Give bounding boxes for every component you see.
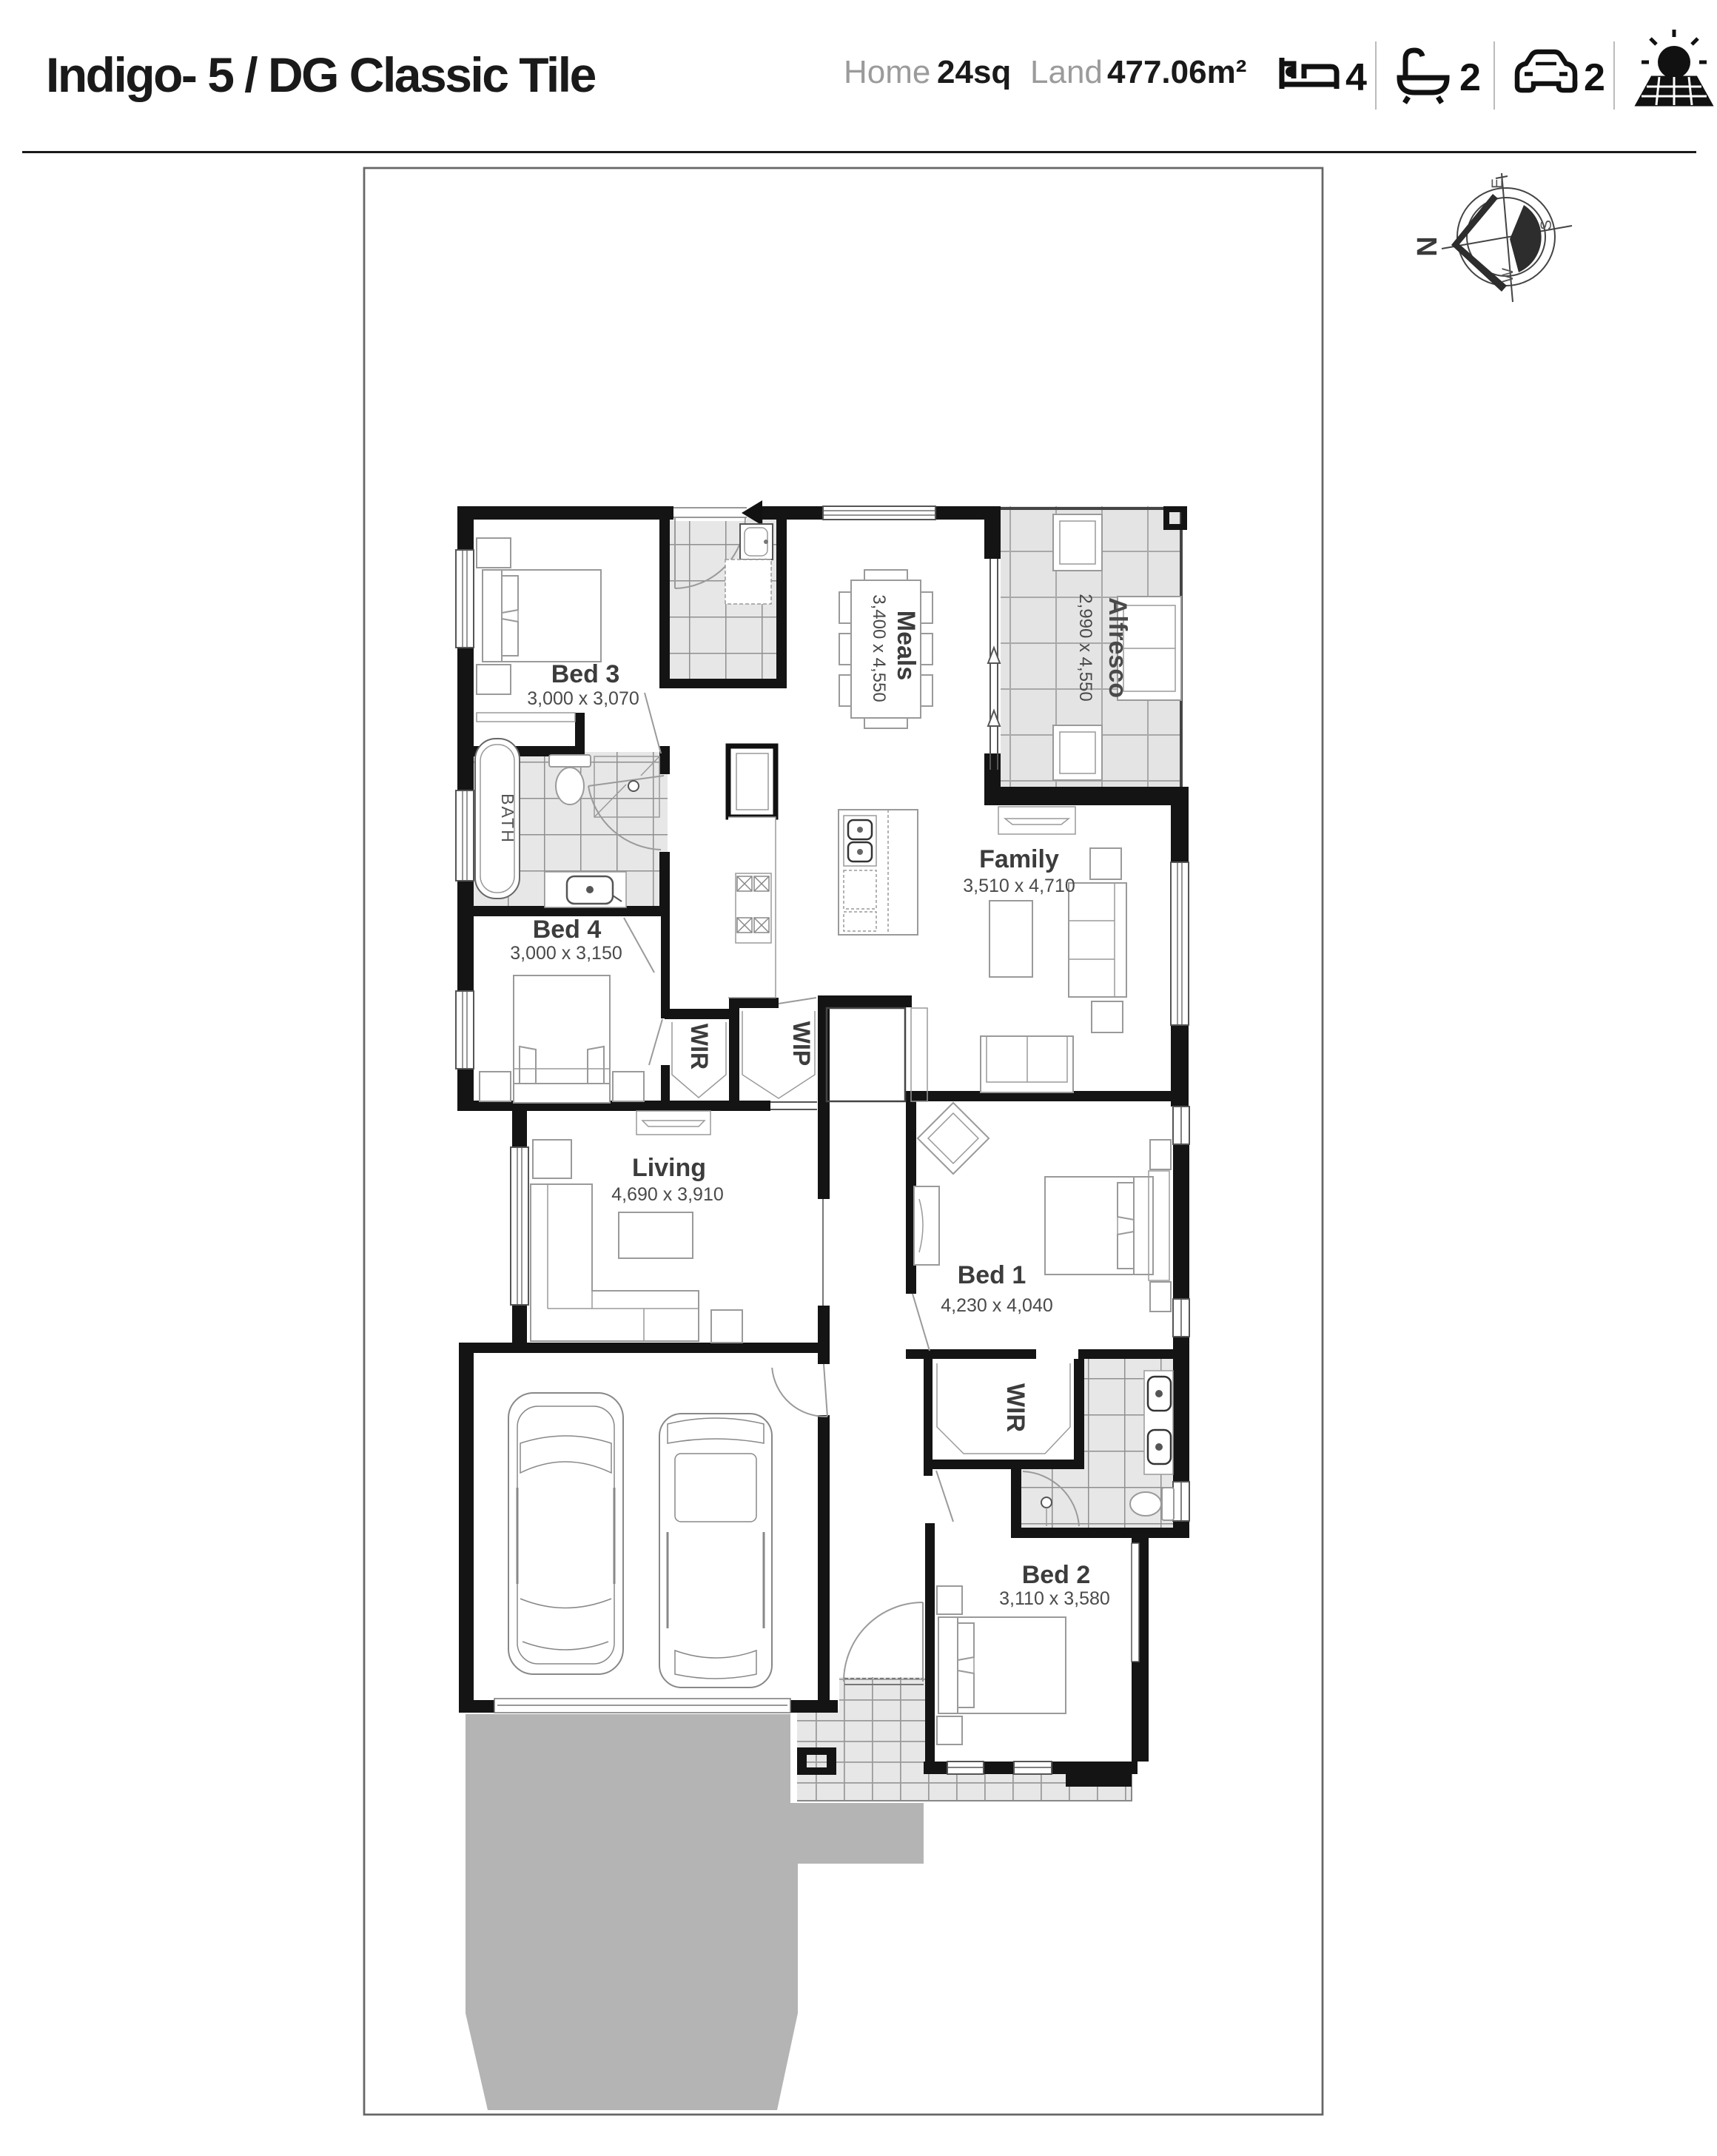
svg-text:4: 4 [1345, 56, 1367, 99]
svg-text:W: W [1499, 268, 1516, 283]
svg-text:Bed 3: Bed 3 [551, 660, 620, 688]
svg-text:WIR: WIR [686, 1024, 713, 1069]
svg-text:2,990 x 4,550: 2,990 x 4,550 [1075, 594, 1095, 701]
svg-text:3,400 x 4,550: 3,400 x 4,550 [869, 594, 889, 702]
svg-text:2: 2 [1459, 56, 1481, 99]
svg-text:BATH: BATH [498, 793, 517, 844]
svg-text:477.06m²: 477.06m² [1107, 54, 1246, 90]
svg-text:Bed 1: Bed 1 [958, 1261, 1026, 1289]
svg-text:Home: Home [844, 54, 930, 90]
svg-text:3,000 x 3,150: 3,000 x 3,150 [510, 943, 622, 964]
svg-text:Bed 2: Bed 2 [1022, 1561, 1091, 1589]
svg-text:WIR: WIR [1001, 1383, 1029, 1432]
svg-text:2: 2 [1584, 56, 1605, 99]
svg-text:Living: Living [632, 1154, 706, 1182]
svg-text:4,690 x 3,910: 4,690 x 3,910 [611, 1184, 724, 1205]
svg-text:WIP: WIP [788, 1021, 815, 1066]
svg-text:24sq: 24sq [937, 54, 1011, 90]
svg-text:3,510 x 4,710: 3,510 x 4,710 [963, 876, 1075, 896]
svg-text:4,230 x 4,040: 4,230 x 4,040 [941, 1295, 1053, 1316]
svg-text:Alfresco: Alfresco [1103, 597, 1132, 698]
svg-text:Land: Land [1030, 54, 1103, 90]
svg-text:Meals: Meals [892, 611, 920, 681]
svg-text:Bed 4: Bed 4 [533, 916, 602, 944]
svg-text:3,000 x 3,070: 3,000 x 3,070 [527, 688, 639, 709]
svg-text:S: S [1538, 220, 1555, 230]
svg-text:3,110 x 3,580: 3,110 x 3,580 [999, 1588, 1110, 1609]
svg-text:Family: Family [979, 845, 1059, 873]
svg-text:Indigo- 5 / DG Classic Tile: Indigo- 5 / DG Classic Tile [46, 47, 596, 102]
svg-text:E: E [1489, 178, 1506, 189]
svg-text:N: N [1412, 236, 1443, 256]
